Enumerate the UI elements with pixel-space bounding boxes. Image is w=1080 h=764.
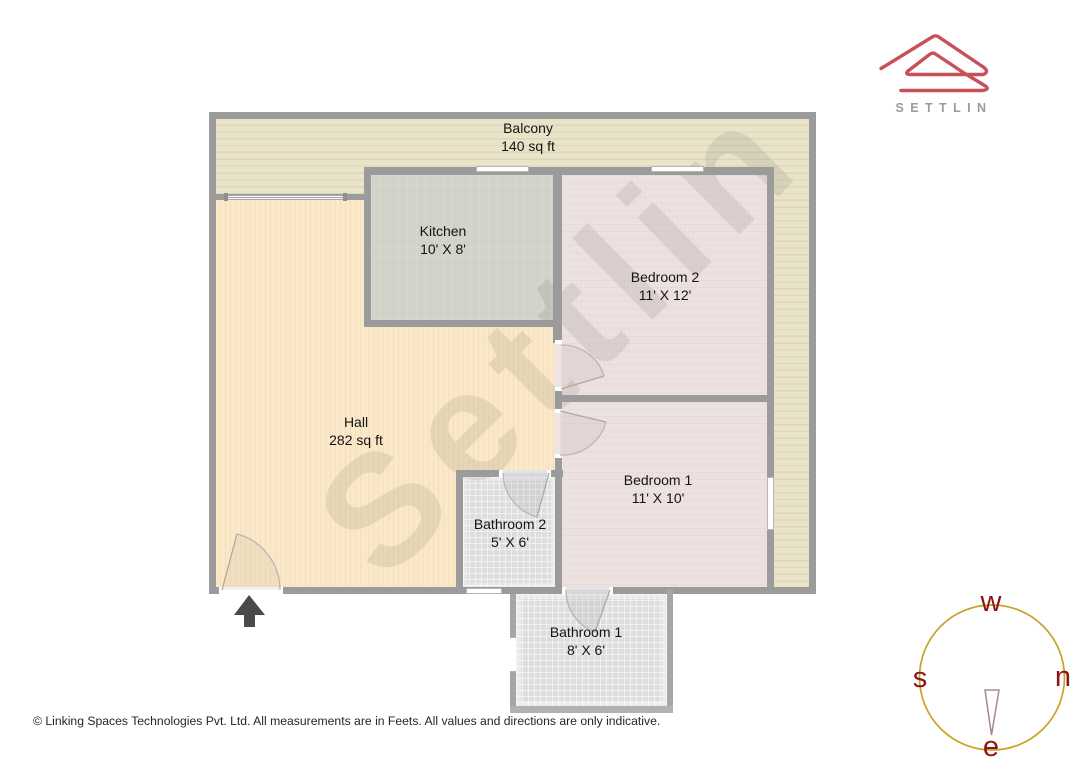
svg-text:w: w bbox=[980, 586, 1003, 618]
svg-text:n: n bbox=[1055, 661, 1071, 693]
svg-text:e: e bbox=[983, 731, 999, 763]
svg-text:SETTLIN: SETTLIN bbox=[896, 101, 993, 115]
svg-text:s: s bbox=[913, 662, 928, 694]
